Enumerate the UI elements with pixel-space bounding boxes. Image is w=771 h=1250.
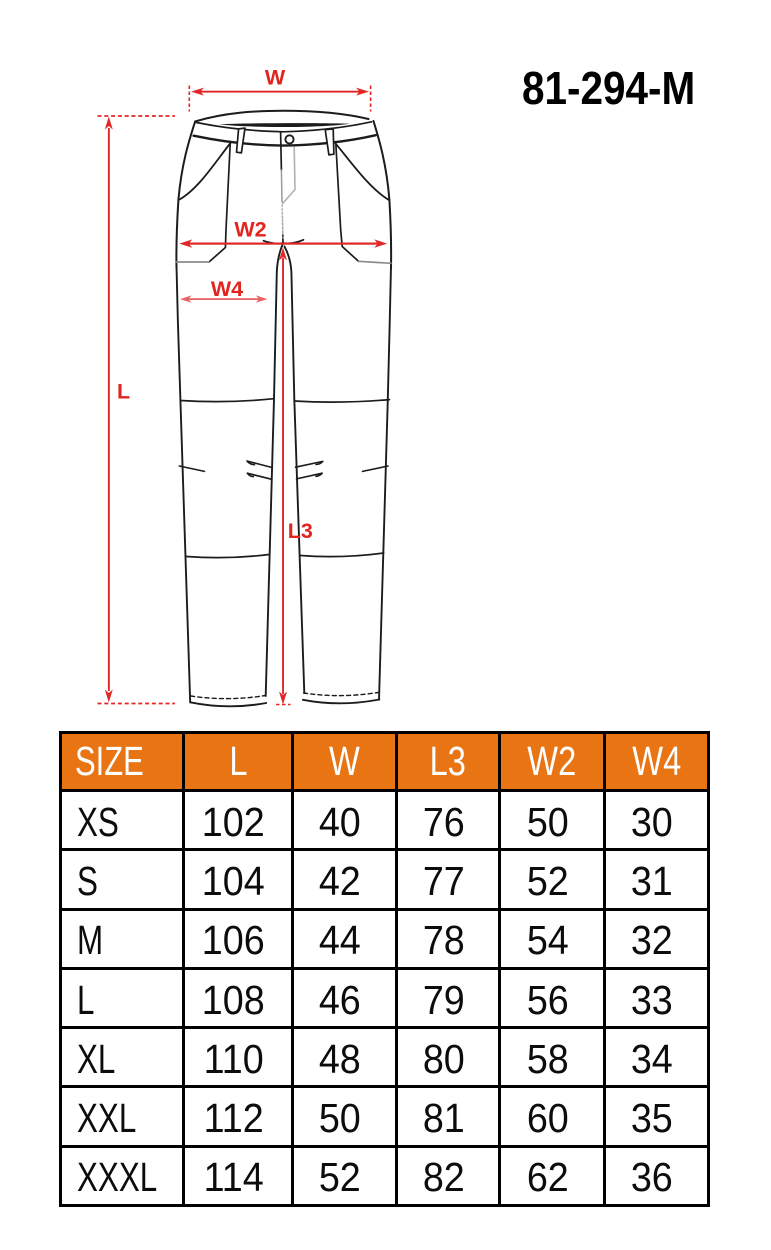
- svg-text:W2: W2: [234, 218, 266, 242]
- svg-text:W4: W4: [211, 277, 243, 301]
- svg-text:W: W: [265, 65, 286, 89]
- svg-text:L3: L3: [288, 519, 313, 543]
- svg-text:L: L: [117, 379, 130, 403]
